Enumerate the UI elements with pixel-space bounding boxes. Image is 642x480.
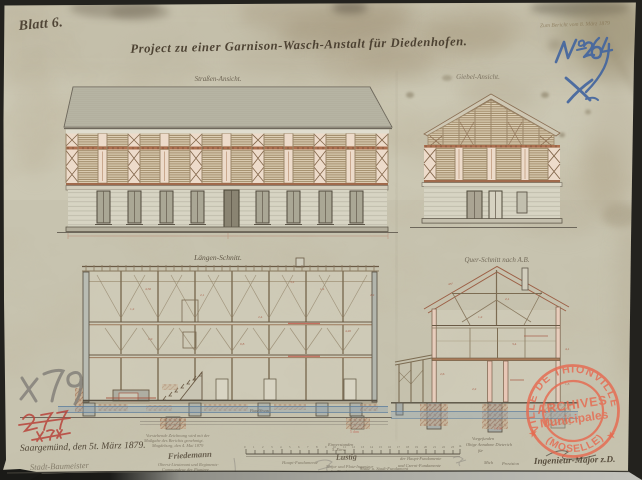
svg-text:23: 23 [451,445,455,449]
svg-text:45°: 45° [448,282,454,286]
svg-text:Stadt-Baumeister: Stadt-Baumeister [30,460,90,472]
svg-text:Quer-Schnitt nach A.B.: Quer-Schnitt nach A.B. [464,256,529,264]
svg-text:Vorgefunden: Vorgefunden [472,436,495,441]
svg-text:17: 17 [397,445,401,449]
svg-text:Giebel-Ansicht.: Giebel-Ansicht. [456,73,500,81]
svg-text:13: 13 [361,445,365,449]
svg-text:Längen-Schnitt.: Längen-Schnitt. [193,253,242,262]
svg-text:1:100: 1:100 [494,427,502,431]
svg-text:für: für [478,448,483,453]
svg-text:20: 20 [424,445,428,449]
svg-text:Obige Annahme Dieterich: Obige Annahme Dieterich [466,442,513,447]
svg-text:Fluss-Niveau: Fluss-Niveau [249,409,269,413]
svg-text:Straßen-Ansicht.: Straßen-Ansicht. [195,75,242,83]
svg-text:16: 16 [388,445,392,449]
svg-text:5. Einw.: 5. Einw. [332,447,346,452]
svg-text:5 cbm: 5 cbm [350,430,359,434]
svg-text:Provision: Provision [501,461,520,466]
svg-text:19: 19 [415,445,419,449]
svg-text:Maße u. Stadt-Fundament: Maße u. Stadt-Fundament [359,466,409,471]
svg-text:14: 14 [370,445,374,449]
svg-text:15: 15 [379,445,383,449]
svg-text:22: 22 [442,445,446,449]
svg-text:der Haupt-Fundamente: der Haupt-Fundamente [400,456,441,461]
svg-text:Haupt-Fundamente: Haupt-Fundamente [281,460,318,465]
svg-text:18: 18 [406,445,410,449]
svg-text:21: 21 [433,445,437,449]
svg-text:Lustig: Lustig [335,452,357,462]
svg-text:Mich: Mich [483,460,494,465]
